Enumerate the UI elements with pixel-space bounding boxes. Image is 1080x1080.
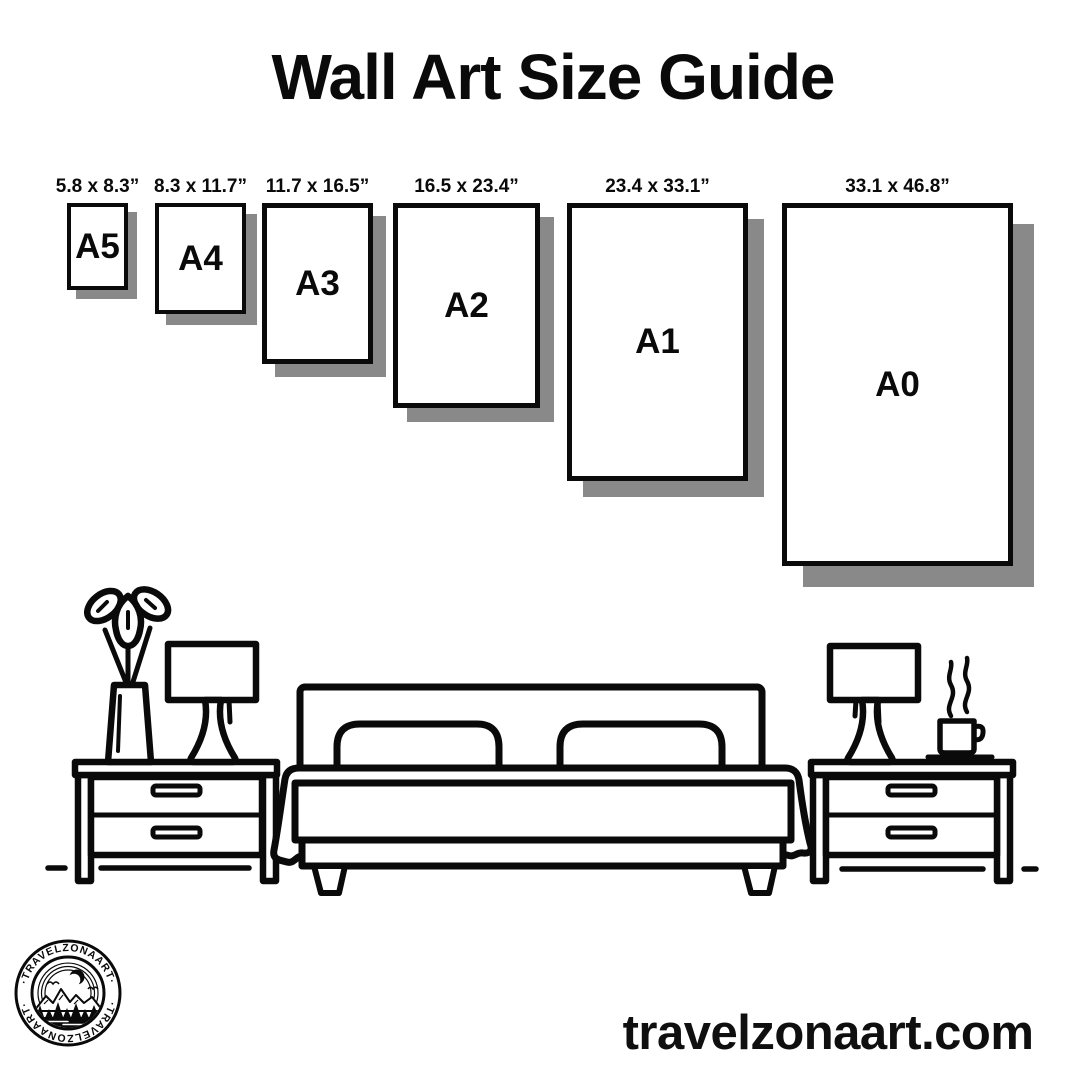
coffee-cup-icon <box>928 658 992 757</box>
table-lamp-left-icon <box>168 644 256 762</box>
flower-vase-icon <box>82 583 174 762</box>
double-bed-icon <box>274 687 811 893</box>
poster: { "title": "Wall Art Size Guide", "color… <box>0 0 1080 1080</box>
brand-logo: ·TRAVELZONAART· ·TRAVELZONAART· <box>8 932 130 1054</box>
table-lamp-right-icon <box>830 646 918 762</box>
nightstand-left-icon <box>75 762 277 881</box>
bedroom-scene <box>0 0 1080 1080</box>
website-url: travelzonaart.com <box>597 1005 1059 1061</box>
nightstand-right-icon <box>811 762 1013 881</box>
